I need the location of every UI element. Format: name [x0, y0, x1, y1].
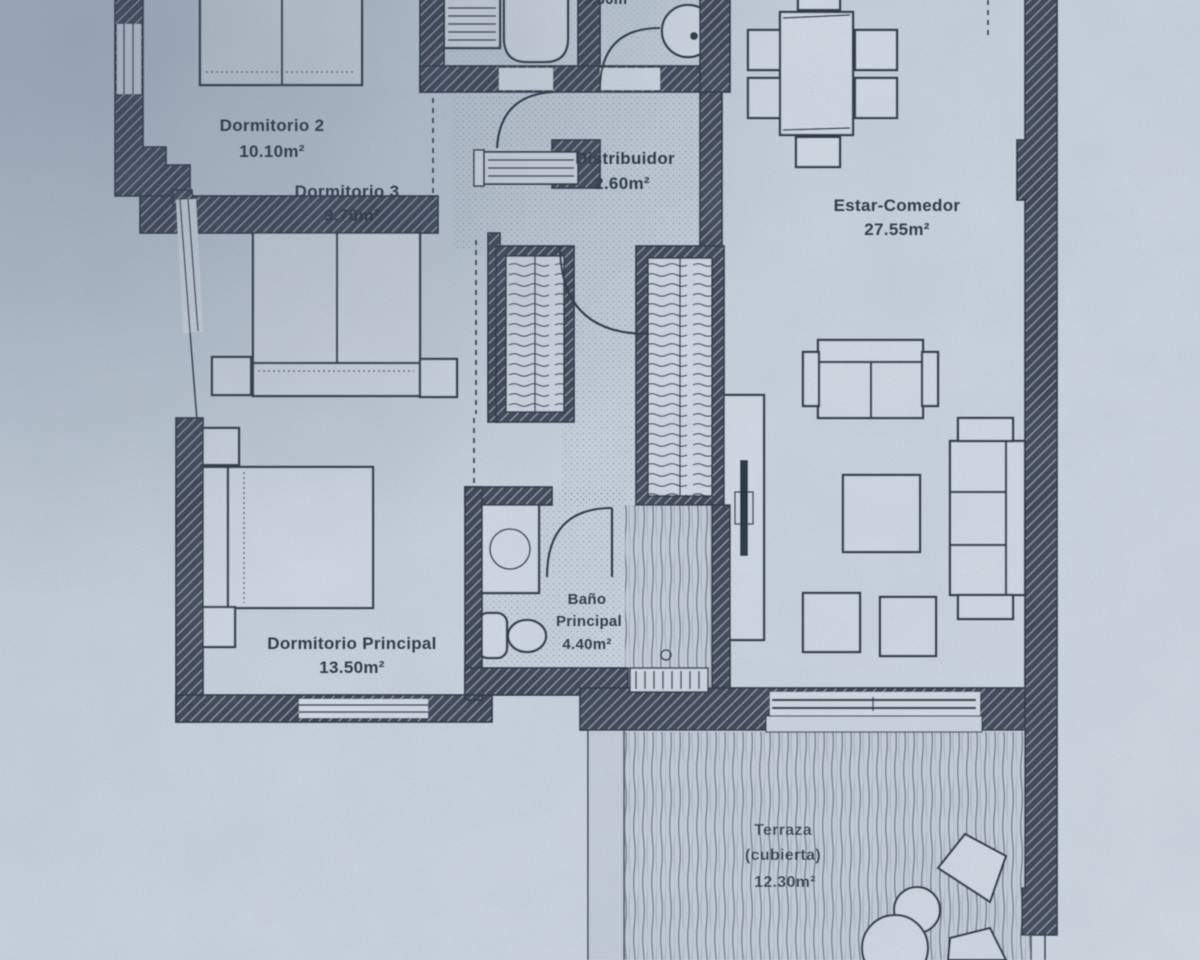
- floor-plan-drawing: 3.30m² Dormitorio 2 10.10m² Dormitorio 3…: [0, 0, 1200, 960]
- corner-vignette: [0, 0, 1200, 960]
- scanned-floor-plan: 3.30m² Dormitorio 2 10.10m² Dormitorio 3…: [0, 0, 1200, 960]
